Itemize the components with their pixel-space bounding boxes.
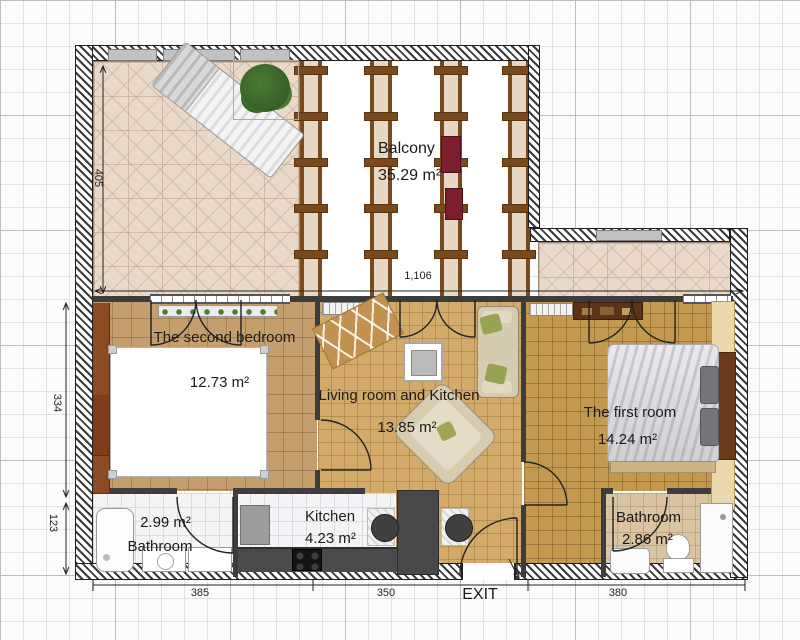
bathroom-left-name-label: Bathroom	[110, 538, 210, 555]
washer-door	[157, 553, 174, 570]
dim-width-left: 385	[180, 587, 220, 599]
wall-balcony-right	[528, 45, 540, 228]
sofa-pillow	[479, 313, 503, 335]
pergola-beam	[502, 250, 536, 259]
floor-plan-canvas: Balcony 35.29 m² The second bedroom 12.7…	[0, 0, 800, 640]
wall-bedroom-bottom	[233, 488, 365, 494]
wardrobe-divider	[93, 455, 109, 456]
pergola-beam	[364, 112, 398, 121]
shower-drain	[720, 514, 726, 520]
pergola-beam	[294, 158, 328, 167]
dim-bottom-height: 123	[47, 510, 59, 536]
exit-door-opening[interactable]	[461, 563, 516, 580]
dim-terrace-height: 405	[92, 164, 104, 192]
balcony-chair[interactable]	[441, 136, 461, 173]
dining-chair[interactable]	[371, 514, 399, 542]
dim-total-width: 1,106	[392, 270, 444, 282]
pergola-beam	[364, 204, 398, 213]
bathroom-right-area-label: 2.86 m²	[622, 531, 673, 548]
second-bedroom-name-label: The second bedroom	[122, 329, 327, 346]
coffee-table[interactable]	[403, 342, 443, 382]
balcony-chair[interactable]	[445, 188, 463, 220]
pergola-beam	[434, 250, 468, 259]
balcony-name-label: Balcony	[378, 140, 435, 158]
wardrobe[interactable]	[93, 303, 110, 493]
bed-post	[260, 345, 269, 354]
bed-second-bedroom[interactable]	[110, 347, 267, 477]
wall-lintel	[108, 49, 157, 61]
pergola-beam	[294, 204, 328, 213]
wardrobe-section	[93, 395, 109, 455]
bathroom-left-area-label: 2.99 m²	[118, 514, 213, 531]
wall-bathright-top	[606, 488, 613, 494]
dresser[interactable]	[573, 302, 643, 320]
first-room-alcove-floor[interactable]	[524, 488, 603, 575]
dining-table[interactable]	[397, 490, 439, 575]
wall-hall-bathright	[601, 488, 606, 577]
dresser-item	[582, 308, 592, 315]
window-plant-box[interactable]	[158, 305, 278, 317]
dim-width-right: 380	[598, 587, 638, 599]
sofa-pillow	[484, 363, 507, 385]
pergola-beam	[364, 250, 398, 259]
first-room-shelf[interactable]	[529, 303, 573, 316]
pergola-beam	[434, 112, 468, 121]
pergola-beam	[294, 66, 328, 75]
dresser-item	[600, 307, 614, 315]
fridge[interactable]	[240, 505, 270, 545]
first-room-name-label: The first room	[540, 404, 720, 421]
terrace-right-floor[interactable]	[538, 242, 734, 297]
exit-label: EXIT	[448, 586, 512, 604]
pergola-beam	[434, 66, 468, 75]
bathroom-right-name-label: Bathroom	[616, 509, 681, 526]
bed-footboard	[610, 461, 716, 473]
pergola-pier	[508, 45, 530, 297]
bedroom-window[interactable]	[150, 294, 290, 304]
bed-post	[108, 345, 117, 354]
dresser-item	[622, 308, 631, 315]
shower-cabin[interactable]	[700, 503, 733, 573]
living-room-area-label: 13.85 m²	[298, 419, 516, 436]
plant[interactable]	[240, 64, 290, 112]
pergola-beam	[364, 66, 398, 75]
shower-tray[interactable]	[610, 548, 650, 574]
stove[interactable]	[292, 549, 322, 571]
dim-rooms-height: 334	[51, 390, 63, 416]
dining-chair[interactable]	[445, 514, 473, 542]
pergola-beam	[294, 250, 328, 259]
wall-lintel	[596, 230, 662, 241]
first-room-area-label: 14.24 m²	[540, 431, 715, 448]
dim-width-center: 350	[366, 587, 406, 599]
bed-post	[260, 470, 269, 479]
second-bedroom-area-label: 12.73 m²	[122, 374, 317, 391]
toilet-tank	[663, 558, 694, 573]
pergola-beam	[294, 112, 328, 121]
bed-post	[108, 470, 117, 479]
living-room-name-label: Living room and Kitchen	[298, 387, 500, 404]
wall-left	[75, 45, 93, 578]
pergola-beam	[364, 158, 398, 167]
wall-living-firstroom	[521, 505, 526, 577]
coffee-table-top	[411, 350, 437, 376]
kitchen-name-label: Kitchen	[305, 508, 355, 525]
kitchen-area-label: 4.23 m²	[305, 530, 356, 547]
sofa[interactable]	[477, 306, 519, 398]
balcony-area-label: 35.29 m²	[378, 167, 441, 185]
bed-pillow	[700, 366, 719, 404]
bathtub-drain	[103, 554, 110, 561]
wall-living-firstroom	[521, 301, 526, 462]
pergola-pier	[300, 45, 322, 297]
